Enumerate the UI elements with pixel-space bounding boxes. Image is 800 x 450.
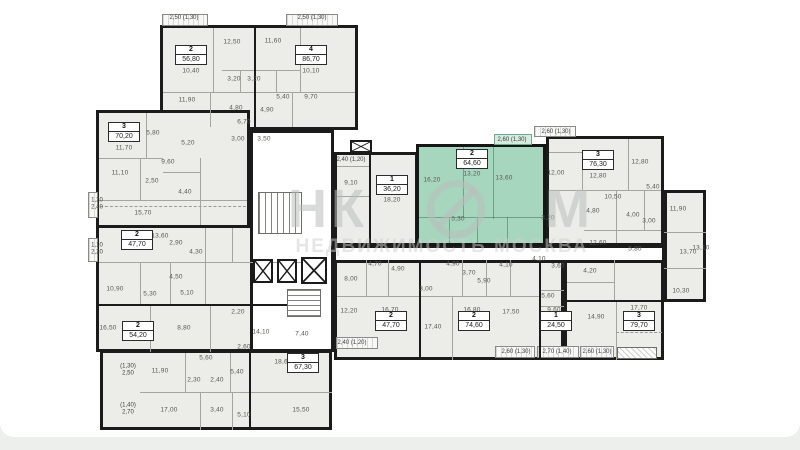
- room-area-label: 2,30: [187, 377, 200, 384]
- room-area-label: 17,00: [160, 407, 177, 414]
- unit-area: 47,70: [122, 240, 152, 249]
- building-core: [250, 130, 334, 352]
- room-area-label: 4,30: [189, 249, 202, 256]
- unit-area: 54,20: [123, 331, 153, 340]
- partition: [388, 260, 389, 296]
- partition: [163, 172, 200, 173]
- room-area-label: 11,90: [152, 368, 169, 375]
- unit-type: 3: [288, 354, 318, 363]
- room-area-label: 5,40: [276, 94, 289, 101]
- unit-area: 70,20: [109, 132, 139, 141]
- partition: [452, 296, 453, 360]
- room-area-label: 5,10: [180, 290, 193, 297]
- partition: [140, 158, 141, 200]
- room-area-label: 4,90: [446, 261, 459, 268]
- partition: [170, 262, 171, 304]
- room-area-label: 5,80: [628, 246, 641, 253]
- room-area-label: 13,20: [463, 171, 480, 178]
- unit-type: 2: [176, 46, 206, 55]
- room-area-label: 5,90: [477, 278, 490, 285]
- stairs-icon: [258, 192, 302, 234]
- balcony-area-label: 2,40 (1,20): [337, 340, 366, 347]
- room-area-label: 15,70: [134, 210, 151, 217]
- unit-badge[interactable]: 379,70: [623, 311, 655, 331]
- room-area-label: 15,50: [292, 407, 309, 414]
- room-area-label: 13,60: [151, 233, 168, 240]
- partition: [232, 392, 233, 430]
- room-area-label: 8,80: [177, 325, 190, 332]
- room-area-label: 5,10: [237, 412, 250, 419]
- room-area-label: 4,50: [169, 274, 182, 281]
- room-area-label: 3,00: [231, 136, 244, 143]
- unit-badge[interactable]: 124,50: [540, 311, 572, 331]
- room-area-label: 2,60: [237, 344, 250, 351]
- room-area-label: 3,60: [551, 263, 564, 270]
- partition: [210, 306, 211, 352]
- room-area-label: 13,60: [495, 175, 512, 182]
- partition: [614, 260, 615, 300]
- partition: [213, 28, 214, 92]
- room-area-label: 12,00: [547, 170, 564, 177]
- room-area-label: 10,40: [182, 68, 199, 75]
- partition: [222, 70, 300, 71]
- partition: [541, 290, 564, 291]
- wall: [539, 260, 541, 360]
- unit-badge[interactable]: 274,60: [458, 311, 490, 331]
- partition: [205, 262, 206, 304]
- room-area-label: 10,30: [672, 288, 689, 295]
- partition: [664, 268, 706, 269]
- room-area-label: 4,80: [229, 105, 242, 112]
- room-area-label: 16,20: [423, 177, 440, 184]
- room-area-label: 2,40: [210, 377, 223, 384]
- partition: [337, 196, 370, 197]
- room-area-label: 4,80: [586, 208, 599, 215]
- partition: [99, 158, 163, 159]
- room-area-label: 3,20: [541, 215, 554, 222]
- unit-area: 56,80: [176, 55, 206, 64]
- unit-type: 1: [541, 312, 571, 321]
- room-area-label: 3,40: [210, 407, 223, 414]
- room-area-label: 9,10: [344, 180, 357, 187]
- balcony-area-label: 2,70 (1,40): [542, 349, 571, 356]
- unit-type: 1: [377, 176, 407, 185]
- room-area-label: 2,20: [231, 309, 244, 316]
- room-area-label: 12,80: [631, 159, 648, 166]
- unit-type: 2: [457, 150, 487, 159]
- room-area-label: 13,70: [679, 249, 696, 256]
- partition-dashed: [616, 332, 662, 333]
- partition: [462, 260, 463, 296]
- room-area-label: 5,40: [646, 184, 659, 191]
- unit-type: 2: [123, 322, 153, 331]
- unit-area: 64,60: [457, 159, 487, 168]
- room-area-label: 12,60: [589, 240, 606, 247]
- unit-badge[interactable]: 247,70: [375, 311, 407, 331]
- unit-area: 47,70: [376, 321, 406, 330]
- balcony-area-label: 2,50 (1,30): [297, 15, 326, 22]
- partition: [419, 217, 543, 218]
- room-area-label: 4,00: [626, 212, 639, 219]
- unit-type: 2: [459, 312, 489, 321]
- room-area-label: 3,70: [462, 270, 475, 277]
- elevator-icon: [350, 140, 372, 153]
- room-area-label: 11,10: [112, 170, 129, 177]
- room-area-label: 12,80: [589, 173, 606, 180]
- partition: [477, 217, 478, 243]
- partition: [205, 228, 206, 262]
- room-area-label: 11,90: [670, 206, 687, 213]
- partition: [140, 392, 332, 393]
- room-area-label: 12,50: [223, 39, 240, 46]
- unit-badge-selected[interactable]: 264,60: [456, 149, 488, 169]
- floor-plan: НК М НЕДВИЖИМОСТЬ МОСКВА 12,5011,6010,40…: [0, 0, 800, 450]
- unit-badge[interactable]: 370,20: [108, 122, 140, 142]
- room-area-label: 4,40: [178, 189, 191, 196]
- partition: [292, 92, 293, 127]
- unit-area: 24,50: [541, 321, 571, 330]
- balcony-area-label: 2,50 (1,30): [169, 15, 198, 22]
- room-area-label: 12,20: [340, 308, 357, 315]
- partition-dashed: [100, 206, 246, 207]
- partition: [337, 296, 420, 297]
- unit-badge[interactable]: 367,30: [287, 353, 319, 373]
- unit-type: 4: [296, 46, 326, 55]
- room-area-label: 10,10: [302, 68, 319, 75]
- room-area-label: 4,90: [391, 266, 404, 273]
- partition: [584, 230, 661, 231]
- balcony-area-label: 1,20 2,40: [91, 198, 103, 211]
- room-area-label: 4,10: [532, 256, 545, 263]
- balcony-area-label: 1,10 2,20: [91, 243, 103, 256]
- partition: [507, 217, 508, 243]
- partition: [366, 260, 367, 296]
- balcony-area-label: (1,30) 2,50: [120, 364, 136, 377]
- partition: [200, 392, 201, 430]
- unit-badge[interactable]: 136,20: [376, 175, 408, 195]
- room-area-label: 16,50: [99, 325, 116, 332]
- partition: [449, 217, 450, 243]
- unit-type: 3: [583, 151, 613, 160]
- unit-type: 3: [624, 312, 654, 321]
- partition: [163, 92, 355, 93]
- elevator-icon: [277, 259, 297, 283]
- partition: [99, 200, 247, 201]
- balcony-area-label: (1,40) 2,70: [120, 403, 136, 416]
- room-area-label: 3,20: [247, 76, 260, 83]
- room-area-label: 4,90: [260, 107, 273, 114]
- unit-type: 2: [376, 312, 406, 321]
- partition: [628, 139, 629, 190]
- room-area-label: 10,90: [106, 286, 123, 293]
- room-area-label: 11,90: [179, 97, 196, 104]
- elevator-icon: [253, 259, 273, 283]
- balcony-area-label: 2,60 (1,30): [501, 349, 530, 356]
- partition: [210, 92, 211, 127]
- partition: [567, 282, 614, 283]
- unit-badge[interactable]: 256,80: [175, 45, 207, 65]
- partition: [421, 296, 539, 297]
- unit-badge[interactable]: 486,70: [295, 45, 327, 65]
- room-area-label: 5,30: [451, 216, 464, 223]
- balcony-area-label: 2,60 (1,30): [541, 129, 570, 136]
- room-area-label: 9,70: [304, 94, 317, 101]
- partition: [200, 158, 201, 225]
- partition: [549, 152, 582, 153]
- wall: [419, 260, 421, 360]
- room-area-label: 5,40: [230, 369, 243, 376]
- unit-badge[interactable]: 247,70: [121, 230, 153, 250]
- room-area-label: 9,60: [161, 159, 174, 166]
- room-area-label: 2,50: [145, 178, 158, 185]
- room-area-label: 7,40: [295, 331, 308, 338]
- room-area-label: 17,40: [424, 324, 441, 331]
- balcony-area-label: 2,60 (1,30): [497, 137, 526, 144]
- room-area-label: 3,20: [227, 76, 240, 83]
- unit-area: 86,70: [296, 55, 326, 64]
- room-area-label: 10,50: [604, 194, 621, 201]
- room-area-label: 14,10: [252, 329, 269, 336]
- partition: [140, 262, 141, 304]
- room-area-label: 11,60: [265, 38, 282, 45]
- partition: [185, 353, 186, 392]
- room-area-label: 5,20: [181, 140, 194, 147]
- unit-area: 76,30: [583, 160, 613, 169]
- unit-area: 79,70: [624, 321, 654, 330]
- unit-badge[interactable]: 254,20: [122, 321, 154, 341]
- unit-area: 74,60: [459, 321, 489, 330]
- unit-badge[interactable]: 376,30: [582, 150, 614, 170]
- room-area-label: 3,50: [257, 136, 270, 143]
- partition: [276, 70, 277, 92]
- room-area-label: 6,70: [237, 119, 250, 126]
- balcony-area-label: 2,60 (1,30): [582, 349, 611, 356]
- room-area-label: 4,20: [583, 268, 596, 275]
- room-area-label: 4,70: [368, 261, 381, 268]
- unit-type: 3: [109, 123, 139, 132]
- room-area-label: 18,20: [383, 197, 400, 204]
- wall: [564, 300, 664, 302]
- room-area-label: 5,30: [143, 291, 156, 298]
- partition: [337, 166, 370, 167]
- room-area-label: 3,00: [419, 286, 432, 293]
- room-area-label: 5,60: [541, 293, 554, 300]
- wall: [96, 304, 312, 306]
- unit-area: 36,20: [377, 185, 407, 194]
- partition: [232, 228, 233, 262]
- partition: [493, 147, 494, 219]
- room-area-label: 5,60: [199, 355, 212, 362]
- room-area-label: 8,00: [344, 276, 357, 283]
- room-area-label: 4,10: [499, 262, 512, 269]
- partition: [664, 232, 706, 233]
- room-area-label: 17,50: [502, 309, 519, 316]
- unit-area: 67,30: [288, 363, 318, 372]
- wall: [369, 152, 371, 246]
- room-area-label: 14,90: [587, 314, 604, 321]
- room-area-label: 5,80: [146, 130, 159, 137]
- room-area-label: 2,90: [169, 240, 182, 247]
- stairs-icon: [287, 289, 321, 317]
- elevator-icon: [301, 257, 327, 284]
- terrace-hatch: [617, 347, 657, 359]
- balcony-area-label: 2,40 (1,20): [336, 157, 365, 164]
- room-area-label: 3,00: [642, 218, 655, 225]
- room-area-label: 11,70: [116, 145, 133, 152]
- unit-type: 2: [122, 231, 152, 240]
